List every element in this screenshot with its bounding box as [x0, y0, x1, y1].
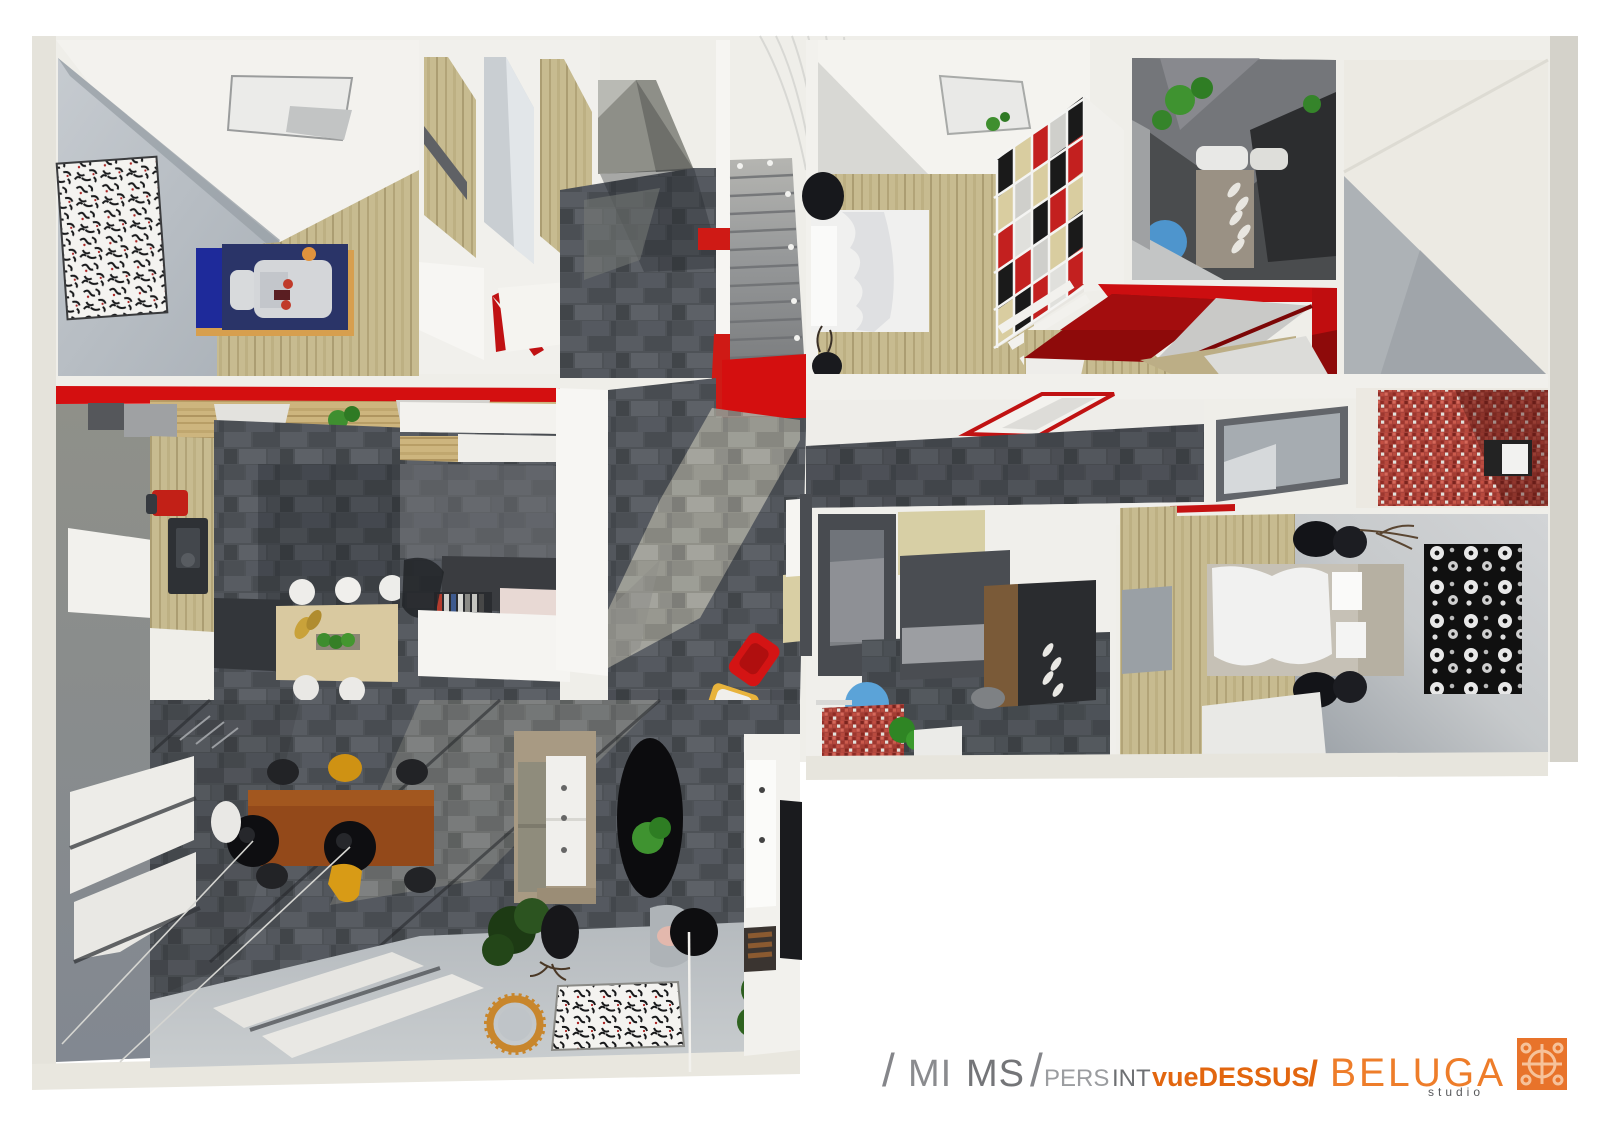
svg-text:/: / [1030, 1044, 1043, 1096]
svg-text:INT: INT [1112, 1065, 1151, 1092]
svg-text:PERS: PERS [1044, 1065, 1109, 1092]
svg-text:/: / [882, 1044, 895, 1096]
svg-text:MI: MI [908, 1053, 952, 1095]
svg-text:studio: studio [1428, 1085, 1484, 1099]
svg-text:MS: MS [966, 1053, 1025, 1095]
svg-text:vueDESSUS: vueDESSUS [1152, 1062, 1310, 1092]
svg-text:/: / [1308, 1053, 1318, 1094]
